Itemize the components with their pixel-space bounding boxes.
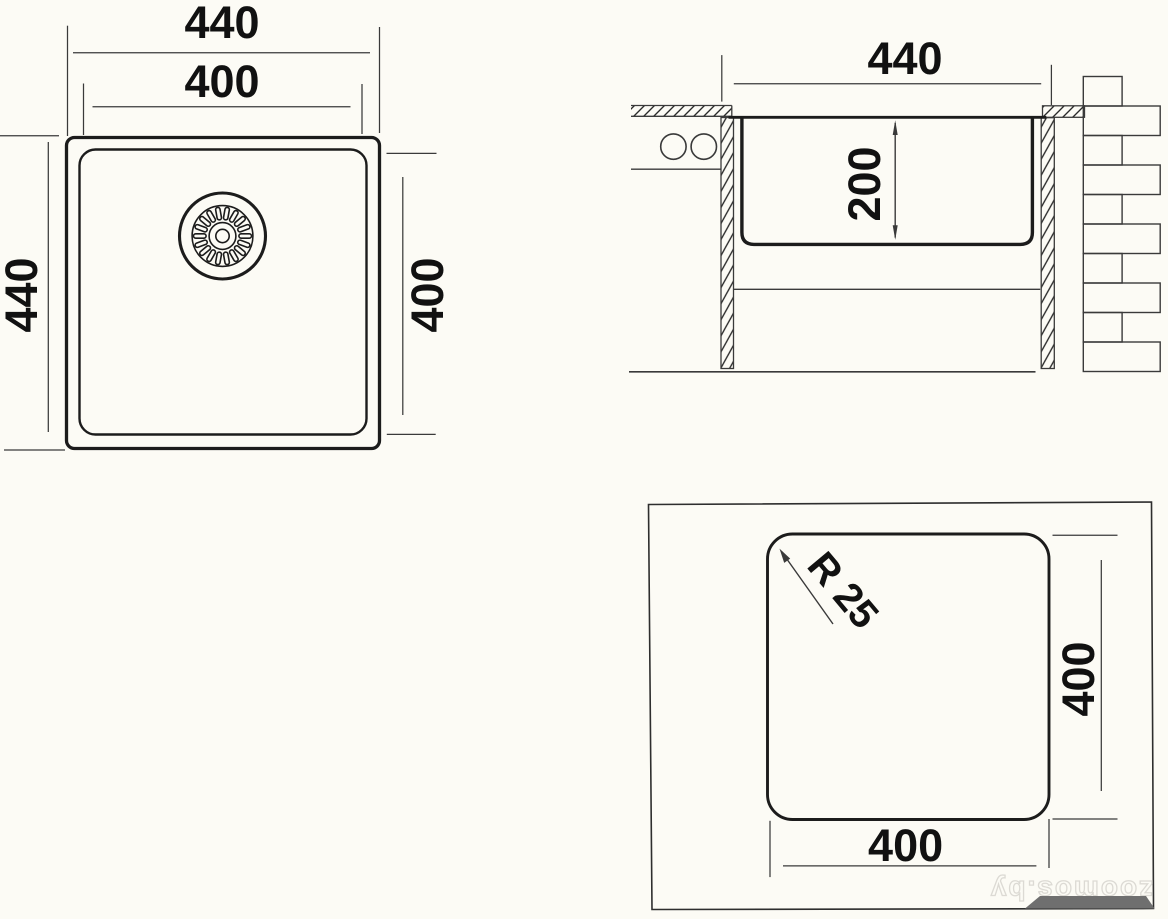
svg-text:200: 200 [839, 146, 890, 221]
svg-text:440: 440 [867, 33, 942, 84]
svg-text:400: 400 [184, 56, 259, 107]
svg-text:400: 400 [402, 257, 453, 332]
svg-text:440: 440 [184, 0, 259, 48]
svg-text:400: 400 [1053, 641, 1104, 716]
svg-text:400: 400 [868, 820, 943, 871]
svg-text:440: 440 [0, 257, 47, 332]
